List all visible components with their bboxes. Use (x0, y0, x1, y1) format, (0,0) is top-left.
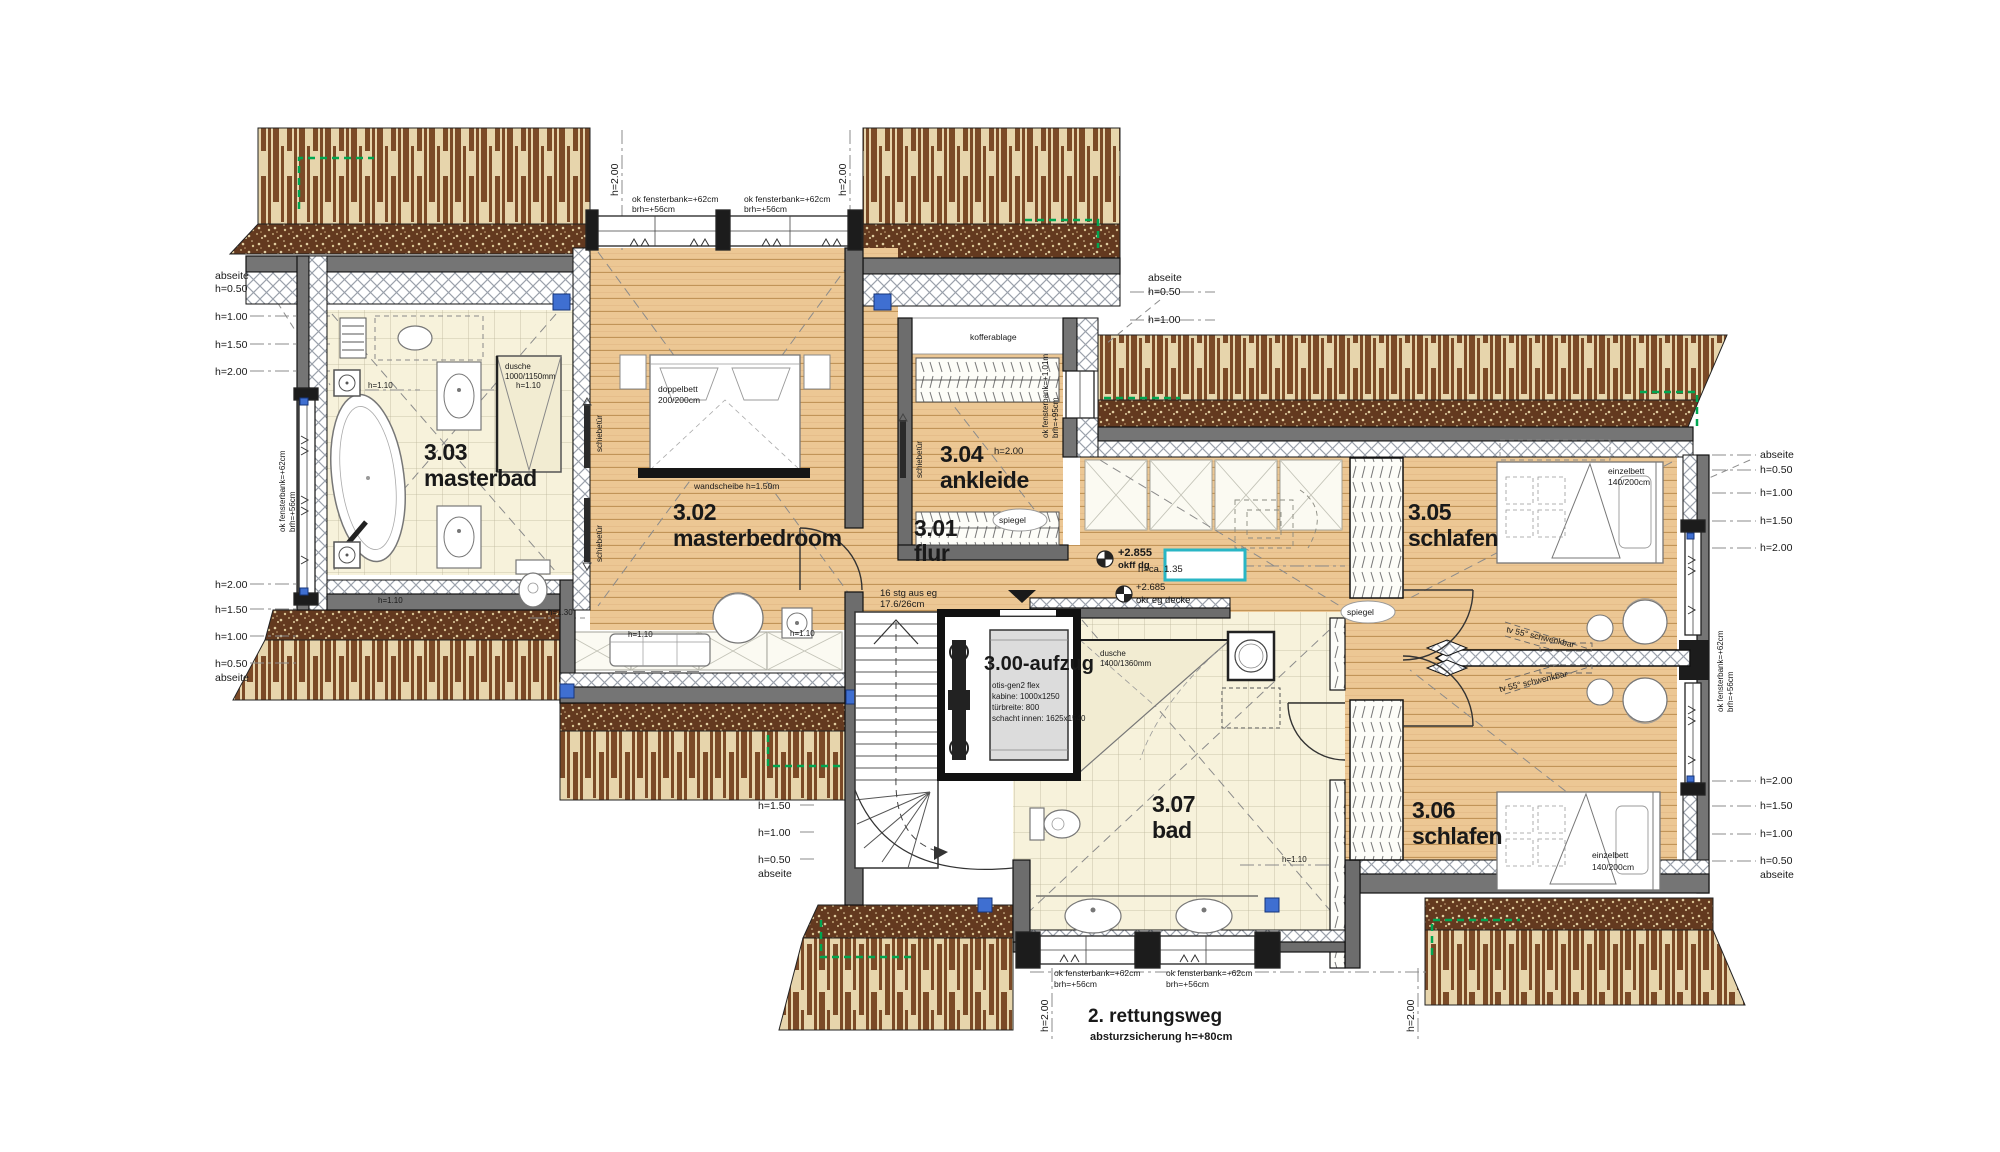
ladder-lines-right-bottom (1712, 781, 1756, 861)
room-name-masterbedroom: masterbedroom (673, 525, 842, 551)
room-number-schlafen306: 3.06 (1412, 797, 1455, 823)
dusche-bad-1: dusche (1100, 649, 1126, 658)
aufzug-spec-4: schacht innen: 1625x1540 (992, 714, 1086, 723)
ladder-bl-100: h=1.00 (215, 631, 248, 643)
wardrobe-306 (1350, 700, 1403, 860)
wandscheibe-label: wandscheibe h=1.50m (693, 481, 779, 491)
aufzug-spec-1: otis-gen2 flex (992, 681, 1040, 690)
roof-strip-bottom-left (233, 640, 560, 700)
schiebetuer-label-2: schiebetür (595, 525, 604, 562)
roof-strip-stair-bay (779, 938, 1013, 1030)
roof-strip-top-left (258, 128, 590, 224)
side-table-upper (1587, 615, 1613, 641)
dusche-master-2: 1000/1150mm (505, 372, 556, 381)
kofferablage-label: kofferablage (970, 332, 1017, 342)
towel-radiator (340, 318, 366, 358)
schiebetuer-label-3: schiebetür (915, 441, 924, 478)
h200-dormer-right: h=2.00 (837, 163, 849, 196)
window-post (716, 210, 730, 250)
wall-ankleide-east-a (1063, 318, 1077, 371)
einzelbett-305-1: einzelbett (1608, 466, 1645, 476)
ladder-rb-100: h=1.00 (1760, 828, 1793, 840)
sill-note-bay-right-2: brh=+56cm (1166, 979, 1209, 989)
washbasin-cabinet-lower (437, 506, 481, 568)
bottom-axis-lines (1052, 968, 1418, 1040)
room-number-masterbedroom: 3.02 (673, 499, 716, 525)
single-bed-306 (1497, 792, 1660, 890)
wall-rw-top-outer (1098, 427, 1693, 441)
h110-bad: h=1.10 (1282, 855, 1307, 864)
room-number-bad: 3.07 (1152, 791, 1195, 817)
window-post (1681, 783, 1705, 795)
ladder-rt-050: h=0.50 (1760, 464, 1793, 476)
window-post (1016, 932, 1040, 968)
window-post (1681, 520, 1705, 532)
wc-masterbad (516, 560, 550, 607)
window-post (1135, 932, 1160, 968)
spiegel-label-schlafen: spiegel (1347, 607, 1374, 617)
room-label-aufzug: 3.00-aufzug (984, 653, 1094, 675)
roof-speckle-right-wing (1098, 400, 1699, 427)
roof-strip-bottom-right (1425, 930, 1745, 1005)
ladder-tl-abseite: abseite (215, 270, 249, 282)
ladder-rb-abseite: abseite (1760, 869, 1794, 881)
aufzug-spec-2: kabine: 1000x1250 (992, 692, 1060, 701)
wall-top-mid-outer (863, 258, 1120, 274)
vanity-basin (398, 326, 432, 350)
stair-note-1: 16 stg aus eg (880, 588, 937, 599)
room-name-schlafen306: schlafen (1412, 823, 1502, 849)
ladder-sb-abseite: abseite (758, 868, 792, 880)
h200-bay-left: h=2.00 (1039, 999, 1051, 1032)
sofa (610, 634, 710, 672)
side-table-lower (1587, 679, 1613, 705)
sill-note-bay-left-2: brh=+56cm (1054, 979, 1097, 989)
roof-strip-right-wing (1098, 335, 1727, 400)
h110-masterbad-b: h=1.10 (516, 381, 541, 390)
wall-right-insul-a (1683, 455, 1697, 530)
room-number-ankleide: 3.04 (940, 441, 984, 467)
hca135-note: h=ca. 1.35 (1138, 564, 1183, 575)
sill-note-ankleide-1: ok fensterbank=+1.01m (1041, 354, 1050, 438)
floorplan-drawing: 3.03 masterbad 3.02 masterbedroom 3.01 f… (0, 0, 2000, 1152)
h130-masterbad: h=1.30 (548, 608, 573, 617)
tv-wall (1436, 650, 1690, 666)
wall-ankleide-east-b2 (1077, 418, 1098, 457)
nightstand-right (804, 355, 830, 389)
roof-speckle-bottom-mid (560, 703, 845, 731)
sill-note-dormer-right-2: brh=+56cm (744, 204, 787, 214)
level-lower-value: +2.685 (1136, 582, 1165, 593)
h110-bedroom-a: h=1.10 (628, 630, 653, 639)
escape-route-subtitle: absturzsicherung h=+80cm (1090, 1031, 1233, 1043)
room-name-ankleide: ankleide (940, 467, 1029, 493)
wall-ankleide-east-a2 (1077, 318, 1098, 371)
level-lower-ref: okr eg decke (1136, 595, 1190, 606)
roof-speckle-top-mid (863, 224, 1120, 258)
ankleide-height-note: h=2.00 (994, 446, 1023, 457)
dusche-master-1: dusche (505, 362, 531, 371)
ladder-bl-150: h=1.50 (215, 604, 248, 616)
room-name-schlafen305: schlafen (1408, 525, 1498, 551)
spiegel-label-flur: spiegel (999, 515, 1026, 525)
ladder-bl-050: h=0.50 (215, 658, 248, 670)
wall-bedroom-east (845, 248, 863, 528)
room-number-flur: 3.01 (914, 515, 958, 541)
stair-note-2: 17.6/26cm (880, 599, 924, 610)
ladder-rt-abseite: abseite (1760, 449, 1794, 461)
sliding-door-masterbad-lower (583, 498, 591, 570)
sliding-door-masterbad-upper (583, 398, 591, 468)
sill-note-left-wall-1: ok fensterbank=+62cm (278, 450, 287, 532)
wall-bay-step (1345, 860, 1360, 968)
einzelbett-306-2: 140/200cm (1592, 862, 1634, 872)
wall-top-mid-insul (863, 274, 1120, 306)
nightstand-left (620, 355, 646, 389)
wall-south-bedroom-outer (560, 687, 845, 703)
window-post (1255, 932, 1280, 968)
einzelbett-306-1: einzelbett (1592, 850, 1629, 860)
sill-note-left-wall-2: brh=+56cm (288, 491, 297, 532)
room-number-schlafen305: 3.05 (1408, 499, 1452, 525)
ladder-tl-050: h=0.50 (215, 283, 248, 295)
wall-rw-top-insul (1098, 441, 1693, 457)
roof-speckle-top-left (230, 224, 590, 254)
roof-strip-top-mid (863, 128, 1120, 224)
h200-bay-right: h=2.00 (1405, 999, 1417, 1032)
escape-route-title: 2. rettungsweg (1088, 1006, 1222, 1027)
sill-note-bay-right-1: ok fensterbank=+62cm (1166, 968, 1252, 978)
ladder-rb-050: h=0.50 (1760, 855, 1793, 867)
ladder-lines-stair-bay (800, 805, 818, 859)
washbasin-cabinet-upper (437, 362, 481, 430)
dusche-bad-2: 1400/1360mm (1100, 659, 1151, 668)
room-name-flur: flur (914, 540, 950, 566)
level-marker-upper (1097, 551, 1113, 567)
doppelbett-label-2: 200/200cm (658, 395, 700, 405)
floor-drain-top (334, 370, 360, 396)
ladder-rb-200: h=2.00 (1760, 775, 1793, 787)
floorplan-canvas: 3.03 masterbad 3.02 masterbedroom 3.01 f… (0, 0, 2000, 1152)
wardrobe-305 (1350, 458, 1403, 598)
wc-bad (1030, 808, 1080, 840)
ladder-rw-050: h=0.50 (1148, 286, 1181, 298)
ladder-rt-200: h=2.00 (1760, 542, 1793, 554)
h110-bedroom-b: h=1.10 (790, 629, 815, 638)
roof-speckle-bottom-right (1425, 898, 1713, 930)
window-post (586, 210, 598, 250)
room-number-masterbad: 3.03 (424, 439, 467, 465)
round-chair (713, 593, 763, 643)
ladder-rb-150: h=1.50 (1760, 800, 1793, 812)
wall-bad-east-a (1330, 618, 1345, 690)
elevator-machinery (948, 640, 970, 760)
level-upper-value: +2.855 (1118, 547, 1152, 559)
ladder-tl-200: h=2.00 (215, 366, 248, 378)
ladder-rw-100: h=1.00 (1148, 314, 1181, 326)
ladder-rw-abseite: abseite (1148, 272, 1182, 284)
level-marker-lower (1116, 586, 1132, 602)
h110-masterbad-a: h=1.10 (368, 381, 393, 390)
room-name-bad: bad (1152, 817, 1192, 843)
sliding-door-ankleide (899, 414, 907, 478)
h200-dormer-left: h=2.00 (609, 163, 621, 196)
einzelbett-305-2: 140/200cm (1608, 477, 1650, 487)
window-post (848, 210, 862, 250)
ladder-rt-100: h=1.00 (1760, 487, 1793, 499)
sill-note-right-wall-2: brh=+56cm (1726, 671, 1735, 712)
ladder-sb-050: h=0.50 (758, 854, 791, 866)
sill-note-ankleide-2: brh=+95cm (1051, 397, 1060, 438)
sill-note-dormer-left-2: brh=+56cm (632, 204, 675, 214)
wall-south-bedroom-insul (560, 673, 845, 687)
ladder-tl-100: h=1.00 (215, 311, 248, 323)
ladder-rt-150: h=1.50 (1760, 515, 1793, 527)
h110-masterbad-c: h=1.10 (378, 596, 403, 605)
double-bed (620, 355, 830, 470)
ladder-sb-100: h=1.00 (758, 827, 791, 839)
wall-bay-west (1013, 860, 1030, 942)
ladder-sb-150: h=1.50 (758, 800, 791, 812)
ladder-bl-abseite: abseite (215, 672, 249, 684)
roof-speckle-bottom-left (265, 610, 560, 640)
ladder-bl-200: h=2.00 (215, 579, 248, 591)
sill-note-right-wall-1: ok fensterbank=+62cm (1716, 630, 1725, 712)
ladder-lines-right-top (1712, 455, 1756, 548)
room-name-masterbad: masterbad (424, 465, 537, 491)
wall-ankleide-east-b (1063, 418, 1077, 457)
floor-drain-bottom (334, 542, 360, 568)
sill-note-bay-left-1: ok fensterbank=+62cm (1054, 968, 1140, 978)
ladder-tl-150: h=1.50 (215, 339, 248, 351)
stair-walkline-arrowhead (934, 846, 948, 860)
doppelbett-label-1: doppelbett (658, 384, 698, 394)
aufzug-spec-3: türbreite: 800 (992, 703, 1040, 712)
sill-note-dormer-right-1: ok fensterbank=+62cm (744, 194, 830, 204)
wandscheibe-wall-slab (638, 468, 810, 478)
schiebetuer-label-1: schiebetür (595, 415, 604, 452)
sill-note-dormer-left-1: ok fensterbank=+62cm (632, 194, 718, 204)
